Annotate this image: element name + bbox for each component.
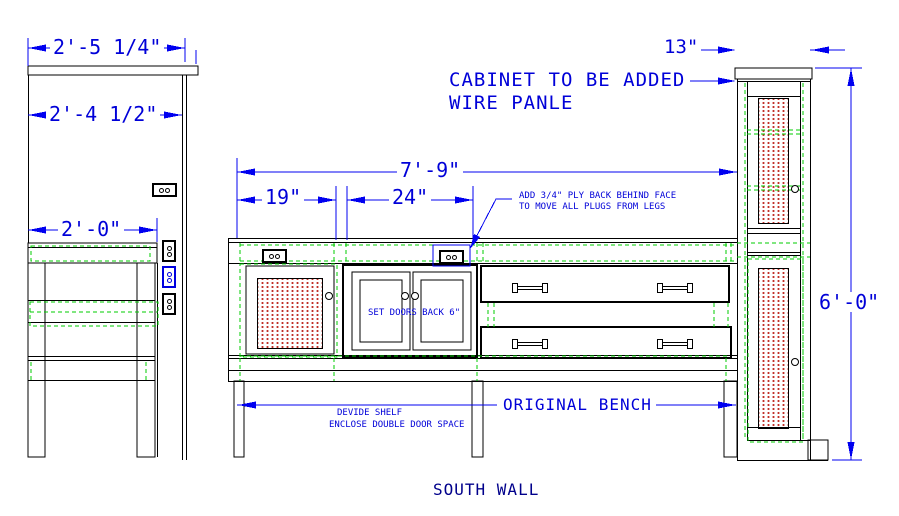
dim-new-cabinet-height: 6'-0" — [816, 292, 882, 312]
dim-total-length: 7'-9" — [397, 160, 463, 180]
note-cabinet-added-line2: WIRE PANLE — [449, 94, 573, 113]
dim-double-door-section: 24" — [389, 187, 431, 207]
door-knob-icon — [325, 292, 333, 300]
note-ply-line1: ADD 3/4" PLY BACK BEHIND FACE — [519, 192, 676, 201]
door-knob-icon — [791, 185, 799, 193]
note-set-doors: SET DOORS BACK 6" — [368, 309, 460, 318]
duplex-outlet-icon — [152, 183, 177, 197]
duplex-outlet-icon — [162, 240, 176, 262]
label-original-bench: ORIGINAL BENCH — [499, 397, 656, 413]
duplex-outlet-icon — [262, 249, 287, 263]
note-shelf-line1: DEVIDE SHELF — [337, 409, 402, 418]
drawer-handle-icon — [512, 283, 548, 293]
duplex-outlet-icon — [439, 250, 464, 264]
dim-bench-depth: 2'-0" — [58, 219, 124, 239]
door-knob-icon — [791, 358, 799, 366]
note-ply-line2: TO MOVE ALL PLUGS FROM LEGS — [519, 203, 665, 212]
dim-new-cabinet-width: 13" — [661, 38, 701, 57]
dim-cabinet-width: 2'-4 1/2" — [46, 104, 160, 124]
drawer-handle-icon — [657, 339, 693, 349]
duplex-outlet-icon — [162, 293, 176, 315]
door-knob-icon — [401, 292, 409, 300]
dim-door-section: 19" — [262, 187, 304, 207]
cad-canvas: 2'-5 1/4" 2'-4 1/2" 2'-0" 7'-9" 19" 24" … — [0, 0, 899, 516]
view-title: SOUTH WALL — [429, 482, 543, 498]
note-cabinet-added-line1: CABINET TO BE ADDED — [449, 71, 685, 90]
dim-counter-width: 2'-5 1/4" — [50, 37, 164, 57]
drawer-handle-icon — [657, 283, 693, 293]
duplex-outlet-icon-highlighted — [162, 266, 176, 288]
door-knob-icon — [411, 292, 419, 300]
note-shelf-line2: ENCLOSE DOUBLE DOOR SPACE — [329, 421, 464, 430]
drawer-handle-icon — [512, 339, 548, 349]
